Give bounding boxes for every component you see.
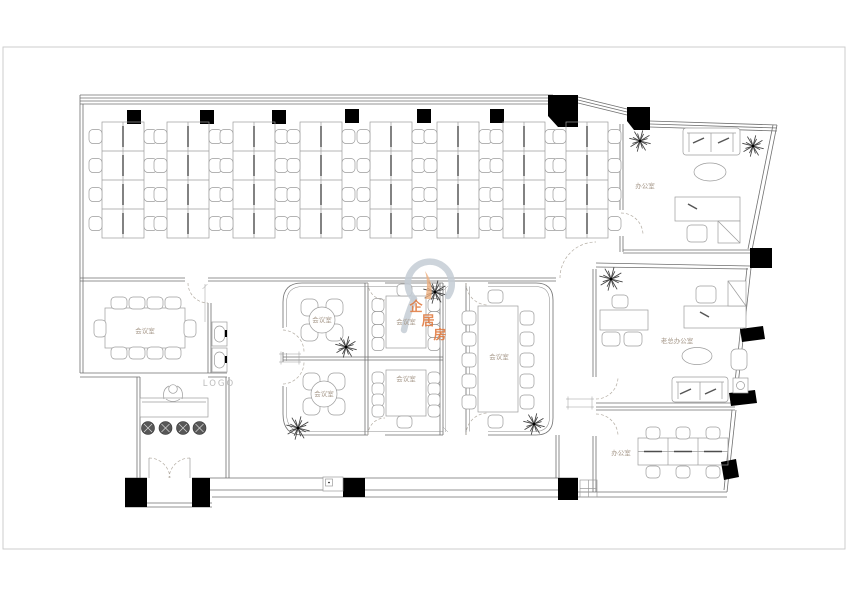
workstation-cluster (357, 122, 425, 238)
structural-columns (125, 95, 772, 507)
watermark-character: 房 (433, 327, 446, 343)
office-bottom-right (638, 427, 728, 478)
workstation-cluster (553, 122, 621, 238)
room-label-office-top-right: 办公室 (635, 181, 655, 190)
room-label-boss-office: 老总办公室 (661, 336, 694, 345)
plant-icon (286, 416, 309, 439)
room-label-meeting-mid-bottom: 会议室 (396, 374, 416, 383)
floor-plan: 企居房 会议室 会议室 会议室 会议室 会议室 会议室 办公室 老总办公室 办公… (0, 0, 848, 600)
workstation-cluster (89, 122, 157, 238)
watermark-character: 居 (421, 314, 434, 329)
room-label-meeting-mid-top: 会议室 (396, 317, 416, 326)
workstation-cluster (287, 122, 355, 238)
room-label-conference-main: 会议室 (489, 352, 509, 361)
plant-icon (629, 130, 650, 151)
plan-geometry (80, 95, 777, 507)
workstation-cluster (490, 122, 558, 238)
plant-icon (599, 267, 622, 290)
mid-meeting-rooms (372, 284, 440, 428)
workstation-cluster (424, 122, 492, 238)
floor-plan-canvas: 企居房 会议室 会议室 会议室 会议室 会议室 会议室 办公室 老总办公室 办公… (0, 0, 848, 600)
logo-text: LOGO (203, 379, 235, 389)
plant-icon (742, 135, 763, 156)
office-top-right (675, 128, 740, 243)
workstation-cluster (220, 122, 288, 238)
room-label-office-bottom-right: 办公室 (611, 448, 631, 457)
room-label-meeting-small-bottom: 会议室 (314, 389, 334, 398)
watermark-character: 企 (408, 299, 423, 315)
room-label-conference-left: 会议室 (135, 326, 155, 335)
workstation-cluster (154, 122, 222, 238)
room-label-meeting-small-top: 会议室 (312, 315, 332, 324)
